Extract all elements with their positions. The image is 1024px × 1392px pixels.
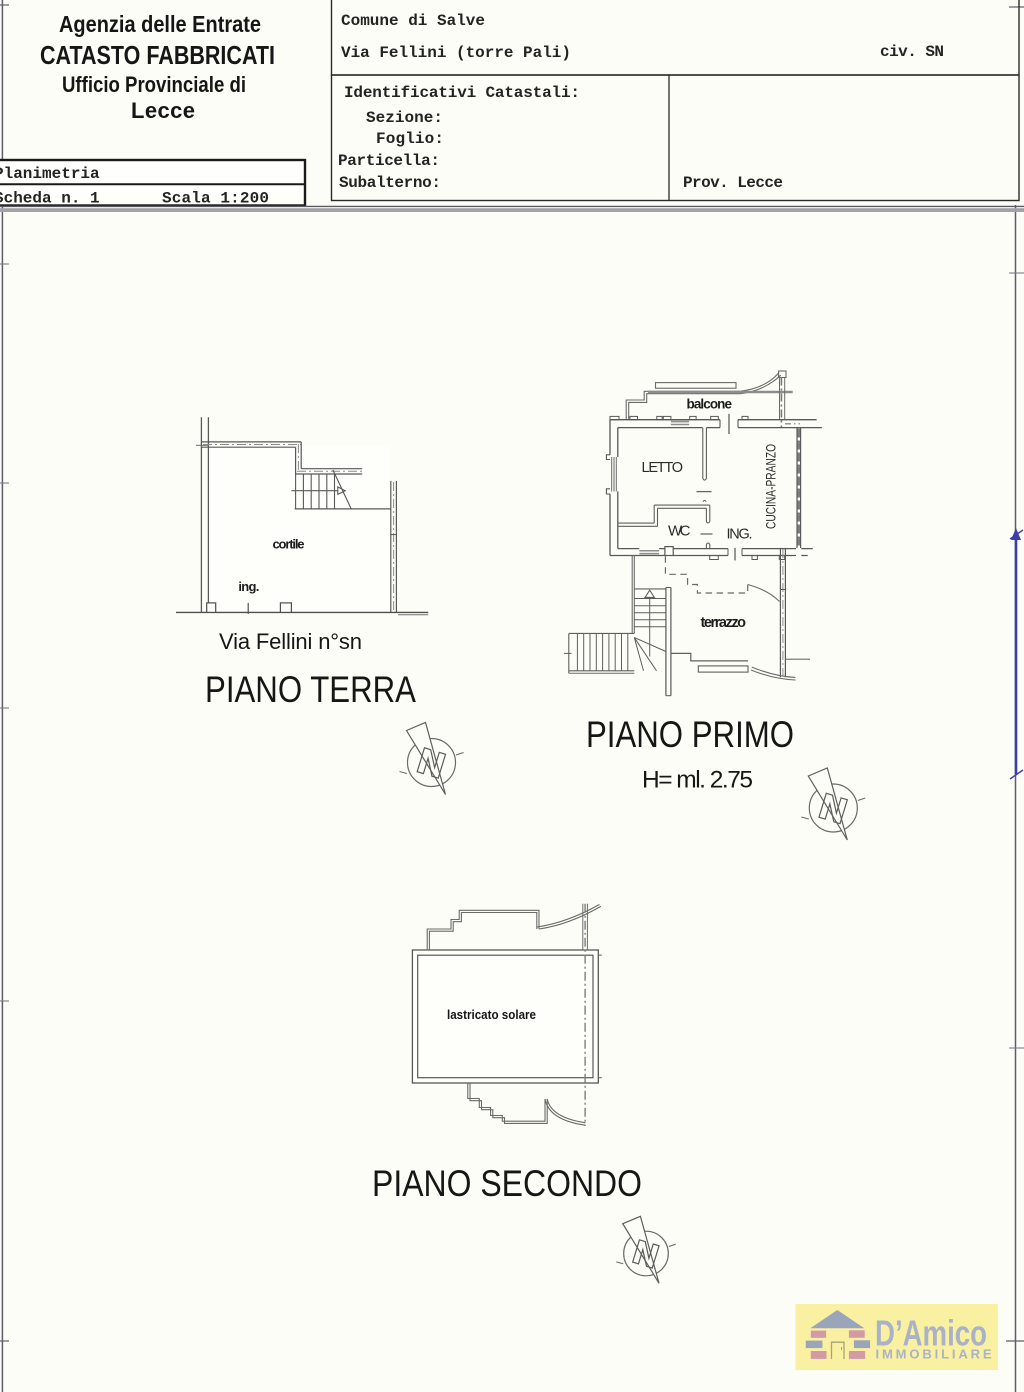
svg-text:Particella:: Particella: bbox=[338, 152, 440, 170]
svg-text:Foglio:: Foglio: bbox=[376, 130, 444, 148]
svg-text:lastricato solare: lastricato solare bbox=[447, 1007, 536, 1022]
svg-text:CATASTO FABBRICATI: CATASTO FABBRICATI bbox=[40, 40, 275, 70]
svg-text:cortile: cortile bbox=[273, 537, 305, 552]
svg-text:Planimetria: Planimetria bbox=[0, 165, 100, 183]
svg-text:terrazzo: terrazzo bbox=[701, 615, 747, 631]
svg-text:LETTO: LETTO bbox=[642, 460, 684, 476]
svg-text:Comune di Salve: Comune di Salve bbox=[341, 12, 485, 30]
svg-text:Scheda n. 1: Scheda n. 1 bbox=[0, 190, 100, 208]
svg-text:Subalterno:: Subalterno: bbox=[339, 174, 441, 192]
svg-text:WC: WC bbox=[668, 523, 691, 540]
svg-text:Scala 1:200: Scala 1:200 bbox=[162, 190, 269, 208]
svg-text:H= ml. 2.75: H= ml. 2.75 bbox=[642, 767, 753, 794]
svg-text:CUCINA-PRANZO: CUCINA-PRANZO bbox=[763, 444, 779, 529]
svg-text:Sezione:: Sezione: bbox=[366, 109, 443, 127]
svg-text:balcone: balcone bbox=[687, 397, 733, 412]
svg-text:ING.: ING. bbox=[727, 527, 753, 543]
svg-text:PIANO TERRA: PIANO TERRA bbox=[205, 669, 416, 710]
svg-text:Prov. Lecce: Prov. Lecce bbox=[683, 174, 783, 192]
svg-text:Via Fellini n°sn: Via Fellini n°sn bbox=[219, 629, 362, 654]
svg-text:Ufficio Provinciale di: Ufficio Provinciale di bbox=[62, 72, 246, 97]
svg-text:Identificativi Catastali:: Identificativi Catastali: bbox=[344, 84, 580, 102]
svg-text:PIANO SECONDO: PIANO SECONDO bbox=[372, 1163, 642, 1204]
svg-text:PIANO PRIMO: PIANO PRIMO bbox=[586, 714, 794, 755]
svg-text:ing.: ing. bbox=[238, 579, 259, 594]
svg-text:civ. SN: civ. SN bbox=[880, 43, 944, 61]
svg-text:Agenzia delle Entrate: Agenzia delle Entrate bbox=[59, 11, 261, 37]
svg-text:Via Fellini (torre Pali): Via Fellini (torre Pali) bbox=[341, 44, 571, 62]
svg-text:Lecce: Lecce bbox=[131, 98, 195, 123]
